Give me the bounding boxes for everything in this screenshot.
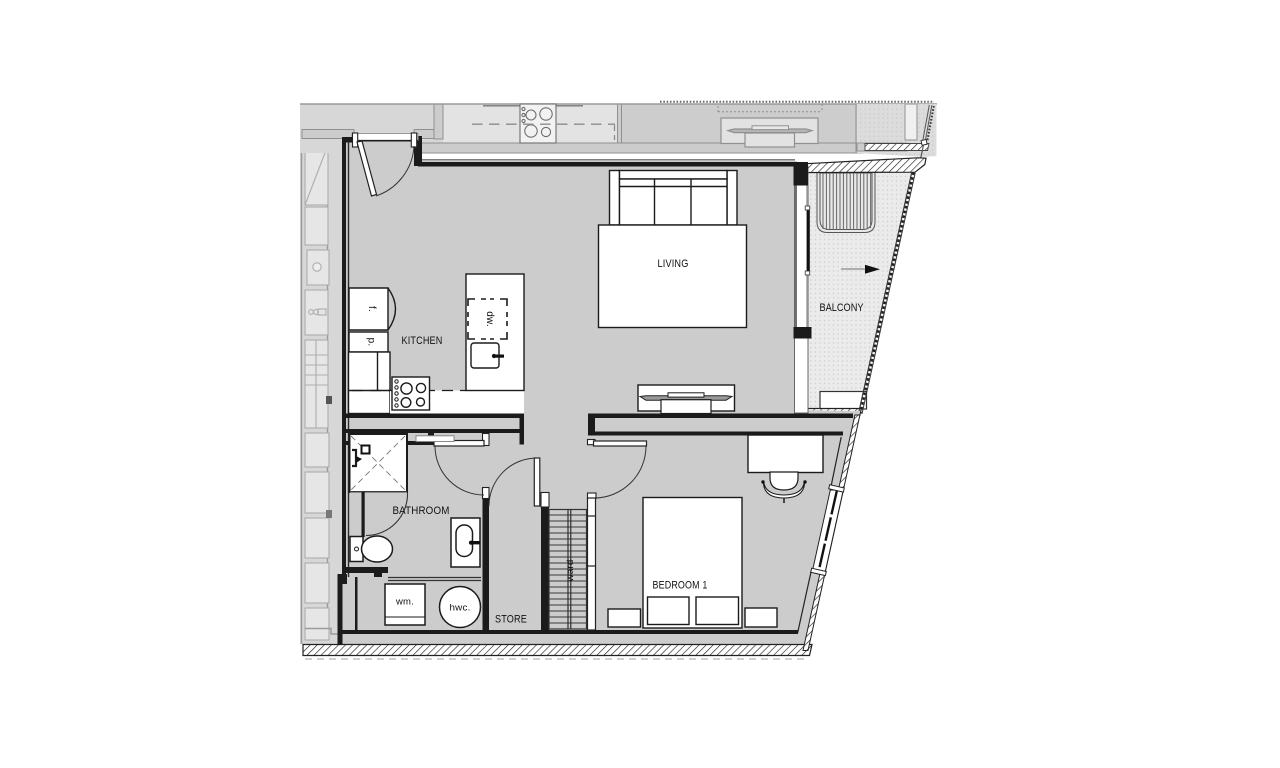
svg-text:f.: f. bbox=[366, 306, 377, 312]
svg-text:LIVING: LIVING bbox=[658, 258, 689, 270]
svg-text:BATHROOM: BATHROOM bbox=[393, 505, 450, 517]
svg-text:KITCHEN: KITCHEN bbox=[402, 335, 443, 347]
svg-text:BEDROOM 1: BEDROOM 1 bbox=[653, 580, 708, 592]
svg-text:STORE: STORE bbox=[495, 614, 527, 626]
svg-text:dw.: dw. bbox=[484, 311, 495, 327]
svg-text:ward: ward bbox=[565, 560, 576, 583]
svg-text:wm.: wm. bbox=[395, 597, 414, 608]
svg-text:p.: p. bbox=[366, 338, 377, 347]
svg-text:BALCONY: BALCONY bbox=[820, 302, 864, 314]
svg-text:hwc.: hwc. bbox=[450, 603, 471, 614]
